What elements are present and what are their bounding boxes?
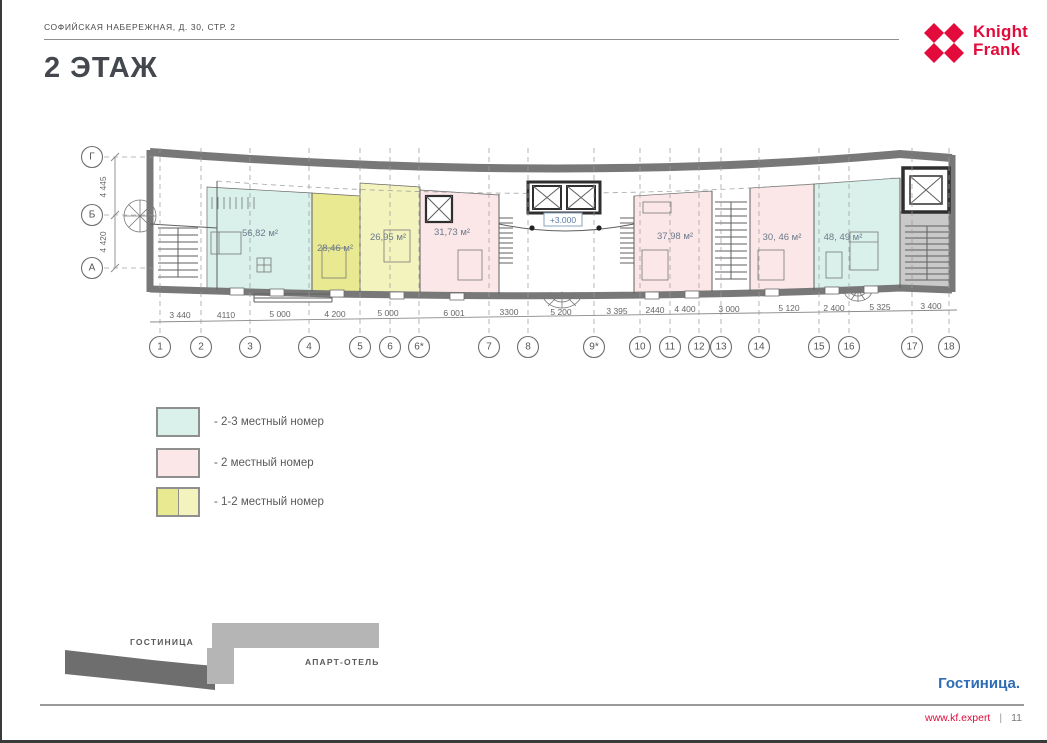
legend-swatch-half-dark xyxy=(158,489,178,515)
svg-text:6 001: 6 001 xyxy=(443,308,465,318)
room-area-label: 37,98 м² xyxy=(657,231,693,242)
slide-page: СОФИЙСКАЯ НАБЕРЕЖНАЯ, Д. 30, СТР. 2 Knig… xyxy=(0,0,1047,743)
legend-label: - 2 местный номер xyxy=(214,457,314,469)
col-dimension-label: 4 420 xyxy=(98,231,108,253)
dimension-label: 3 400 xyxy=(920,301,942,311)
footer-divider xyxy=(40,704,1024,706)
room-area-label: 28,46 м² xyxy=(317,243,353,254)
row-axis-bubble: 8 xyxy=(518,148,539,358)
minimap-apart-shape xyxy=(207,623,379,684)
svg-text:2 400: 2 400 xyxy=(823,303,845,313)
minimap-hotel-label: ГОСТИНИЦА xyxy=(130,637,194,647)
col-axis-bubble: Б xyxy=(82,205,155,226)
legend-swatch-1-2 xyxy=(156,487,200,517)
svg-text:5 000: 5 000 xyxy=(377,308,399,318)
svg-text:Б: Б xyxy=(89,210,96,221)
svg-text:3 400: 3 400 xyxy=(920,301,942,311)
svg-text:14: 14 xyxy=(753,342,765,353)
footer: www.kf.expert | 11 xyxy=(925,712,1022,724)
svg-text:6: 6 xyxy=(387,342,393,353)
dimension-label: 3 440 xyxy=(169,310,191,320)
svg-text:3300: 3300 xyxy=(500,307,519,317)
dimension-label: 3 395 xyxy=(606,306,628,316)
svg-text:5: 5 xyxy=(357,342,363,353)
dimension-label: 3300 xyxy=(500,307,519,317)
svg-text:3 000: 3 000 xyxy=(718,304,740,314)
room-area-label: 56,82 м² xyxy=(242,228,278,239)
svg-text:4110: 4110 xyxy=(217,310,236,320)
svg-text:30, 46 м²: 30, 46 м² xyxy=(763,232,802,243)
svg-text:15: 15 xyxy=(813,342,825,353)
svg-text:5 325: 5 325 xyxy=(869,302,891,312)
room-area-label: 26,95 м² xyxy=(370,232,406,243)
svg-text:3: 3 xyxy=(247,342,253,353)
room-area-label: 48, 49 м² xyxy=(824,232,863,243)
svg-text:4 400: 4 400 xyxy=(674,304,696,314)
svg-text:1: 1 xyxy=(157,342,163,353)
row-axis-bubble: 9* xyxy=(584,148,605,358)
row-dimensions: 3 440 4110 5 000 4 200 5 000 6 001 3300 … xyxy=(169,301,942,320)
minimap: ГОСТИНИЦА АПАРТ-ОТЕЛЬ xyxy=(65,623,380,690)
footer-site-link[interactable]: www.kf.expert xyxy=(925,712,990,724)
svg-text:28,46 м²: 28,46 м² xyxy=(317,243,353,254)
room-area-label: 31,73 м² xyxy=(434,227,470,238)
dimension-label: 6 001 xyxy=(443,308,465,318)
dimension-label: 5 200 xyxy=(550,307,572,317)
col-axis-bubble: А xyxy=(82,258,155,279)
svg-text:12: 12 xyxy=(693,342,705,353)
page-number: 11 xyxy=(1011,712,1022,724)
footer-separator: | xyxy=(999,712,1002,724)
svg-text:16: 16 xyxy=(843,342,855,353)
svg-text:9*: 9* xyxy=(589,342,599,353)
legend-swatch-half-light xyxy=(178,489,199,515)
col-dimension-label: 4 445 xyxy=(98,176,108,198)
col-dimension-line xyxy=(111,153,119,272)
dimension-label: 4 200 xyxy=(324,309,346,319)
legend-item-2: - 2 местный номер xyxy=(156,448,314,478)
minimap-hotel-shape xyxy=(65,650,215,690)
svg-text:11: 11 xyxy=(665,342,676,353)
legend-label: - 2-3 местный номер xyxy=(214,416,324,428)
dimension-label: 5 000 xyxy=(269,309,291,319)
dimension-label: 4 400 xyxy=(674,304,696,314)
legend-swatch-2 xyxy=(156,448,200,478)
svg-text:8: 8 xyxy=(525,342,531,353)
svg-text:5 200: 5 200 xyxy=(550,307,572,317)
svg-text:Г: Г xyxy=(89,152,95,163)
dimension-label: 4110 xyxy=(217,310,236,320)
svg-text:13: 13 xyxy=(715,342,727,353)
svg-text:17: 17 xyxy=(906,342,918,353)
legend-swatch-2-3 xyxy=(156,407,200,437)
svg-text:10: 10 xyxy=(634,342,646,353)
svg-text:7: 7 xyxy=(486,342,492,353)
svg-text:4 200: 4 200 xyxy=(324,309,346,319)
svg-text:2440: 2440 xyxy=(646,305,665,315)
svg-text:3 440: 3 440 xyxy=(169,310,191,320)
dimension-label: 5 325 xyxy=(869,302,891,312)
legend-item-1-2: - 1-2 местный номер xyxy=(156,487,324,517)
svg-text:2: 2 xyxy=(198,342,204,353)
level-mark: +3.000 xyxy=(550,215,577,225)
svg-text:56,82 м²: 56,82 м² xyxy=(242,228,278,239)
svg-text:37,98 м²: 37,98 м² xyxy=(657,231,693,242)
minimap-apart-label: АПАРТ-ОТЕЛЬ xyxy=(305,657,380,667)
svg-text:А: А xyxy=(89,263,96,274)
room-area-label: 30, 46 м² xyxy=(763,232,802,243)
svg-text:5 000: 5 000 xyxy=(269,309,291,319)
dimension-label: 5 120 xyxy=(778,303,800,313)
legend-item-2-3: - 2-3 местный номер xyxy=(156,407,324,437)
svg-text:3 395: 3 395 xyxy=(606,306,628,316)
svg-text:5 120: 5 120 xyxy=(778,303,800,313)
col-axis-bubble: Г xyxy=(82,147,155,168)
svg-text:18: 18 xyxy=(943,342,955,353)
row-axis-bubble: 13 xyxy=(711,148,732,358)
dimension-label: 5 000 xyxy=(377,308,399,318)
svg-text:26,95 м²: 26,95 м² xyxy=(370,232,406,243)
svg-text:6*: 6* xyxy=(414,342,424,353)
svg-text:31,73 м²: 31,73 м² xyxy=(434,227,470,238)
dimension-label: 2440 xyxy=(646,305,665,315)
svg-text:4: 4 xyxy=(306,342,312,353)
dimension-label: 3 000 xyxy=(718,304,740,314)
svg-text:48, 49 м²: 48, 49 м² xyxy=(824,232,863,243)
caption-hotel: Гостиница. xyxy=(938,675,1020,692)
legend-label: - 1-2 местный номер xyxy=(214,496,324,508)
dimension-label: 2 400 xyxy=(823,303,845,313)
floor-plan-canvas: +3.000 xyxy=(2,0,1047,743)
